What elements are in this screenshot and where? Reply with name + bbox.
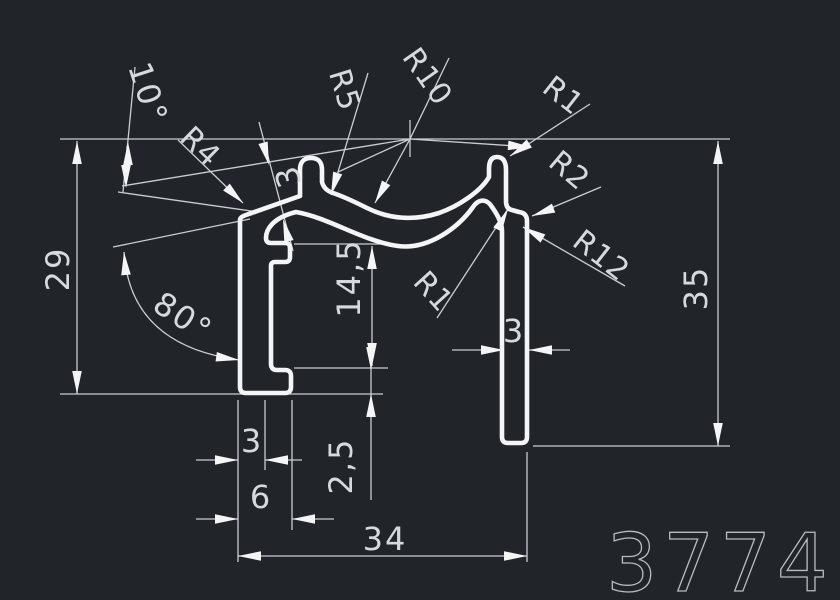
arrow-14-5-top: [367, 246, 377, 269]
label-angle-10: 10°: [120, 57, 176, 128]
label-r10: R10: [395, 42, 459, 113]
arrow-r10: [371, 181, 391, 206]
label-r4: R4: [173, 120, 227, 174]
arrow-34-r: [504, 551, 527, 561]
angle80-leg-line: [113, 219, 250, 247]
label-3-right: 3: [503, 312, 525, 350]
fan-ray-left: [338, 139, 410, 172]
label-3-bottom: 3: [241, 422, 263, 460]
arrow-80deg-top: [119, 252, 131, 276]
arrow-2-5-bottom: [366, 394, 376, 417]
label-29: 29: [39, 247, 77, 292]
arrow-35-bottom: [713, 423, 723, 446]
arrow-29-top: [72, 141, 82, 164]
arrow-r2: [530, 204, 555, 221]
arrow-3-top-lower: [278, 218, 293, 243]
label-r12: R12: [566, 223, 636, 289]
arrow-35-top: [713, 141, 723, 164]
arrow-6-r: [292, 514, 315, 524]
arrow-6-l: [215, 514, 238, 524]
label-r1-top: R1: [536, 69, 591, 122]
arrow-80deg-bottom: [216, 352, 240, 365]
label-2-5: 2,5: [322, 438, 360, 495]
label-r1-mid: R1: [406, 265, 460, 320]
arrow-10deg-up: [123, 142, 133, 165]
label-14-5: 14,5: [330, 238, 368, 317]
dimension-labels: 10° R4 3 R5 R10 R1 R2 R12 R1 29 80° 14,5…: [39, 42, 715, 558]
arrow-29-bottom: [72, 371, 82, 394]
label-angle-80: 80°: [146, 284, 219, 350]
label-3-top: 3: [267, 160, 309, 191]
label-r5: R5: [321, 65, 367, 115]
drawing-canvas: 10° R4 3 R5 R10 R1 R2 R12 R1 29 80° 14,5…: [0, 0, 840, 600]
cad-drawing: 10° R4 3 R5 R10 R1 R2 R12 R1 29 80° 14,5…: [0, 0, 840, 600]
arrow-3-bottom-l: [215, 455, 238, 465]
label-6: 6: [250, 478, 272, 516]
arrow-3-right-r: [529, 345, 552, 355]
arrow-34-l: [238, 551, 261, 561]
arrow-2-5-top: [366, 347, 376, 370]
arrow-r12: [521, 223, 546, 243]
label-35: 35: [677, 266, 715, 311]
profile-number: 3774: [606, 517, 834, 600]
arrow-3-bottom-r: [265, 455, 288, 465]
label-34: 34: [363, 520, 408, 558]
dimension-arrows: [72, 139, 723, 560]
profile-outline: [240, 157, 527, 443]
label-r2: R2: [542, 144, 597, 198]
